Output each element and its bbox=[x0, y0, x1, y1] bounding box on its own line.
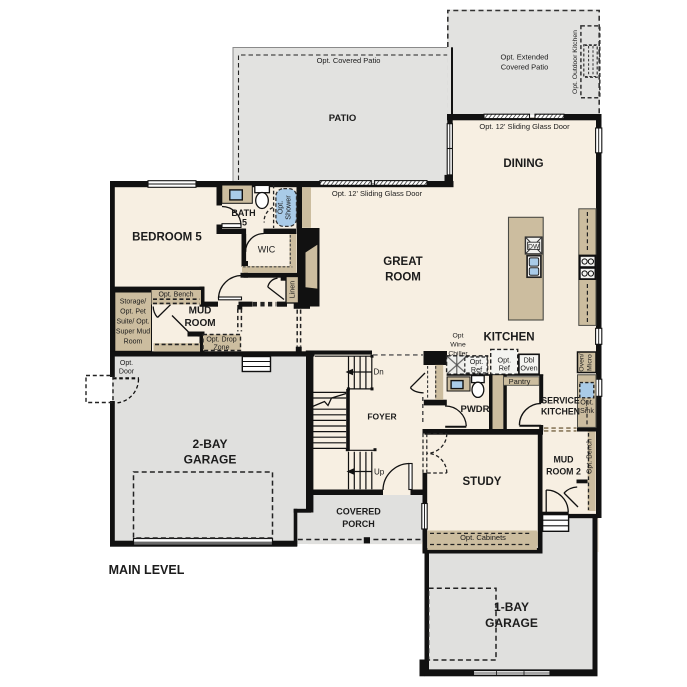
svg-text:Opt. Cabinets: Opt. Cabinets bbox=[460, 533, 506, 542]
svg-text:Suite/ Opt.: Suite/ Opt. bbox=[116, 319, 149, 326]
svg-text:Zone: Zone bbox=[214, 345, 230, 352]
svg-text:MAIN LEVEL: MAIN LEVEL bbox=[109, 563, 185, 577]
svg-text:Opt. Bench: Opt. Bench bbox=[158, 292, 193, 299]
svg-text:KITCHEN: KITCHEN bbox=[483, 332, 534, 344]
svg-text:PATIO: PATIO bbox=[329, 113, 357, 124]
svg-text:PWDR: PWDR bbox=[460, 404, 489, 415]
svg-text:GARAGE: GARAGE bbox=[485, 616, 538, 630]
svg-text:Opt. 12' Sliding Glass Door: Opt. 12' Sliding Glass Door bbox=[479, 122, 570, 131]
svg-text:Opt: Opt bbox=[453, 333, 464, 340]
svg-text:Shower: Shower bbox=[284, 195, 293, 220]
svg-text:COVERED: COVERED bbox=[336, 507, 381, 517]
svg-text:Opt. Extended: Opt. Extended bbox=[501, 53, 549, 62]
svg-text:STUDY: STUDY bbox=[463, 476, 502, 488]
svg-text:Sink: Sink bbox=[580, 406, 594, 415]
svg-text:BEDROOM 5: BEDROOM 5 bbox=[132, 232, 202, 244]
svg-text:Opt. Pet: Opt. Pet bbox=[120, 309, 146, 316]
svg-text:MUD: MUD bbox=[189, 306, 212, 317]
svg-text:Opt.: Opt. bbox=[120, 360, 133, 367]
svg-text:Oven/: Oven/ bbox=[579, 353, 586, 371]
svg-text:ROOM 2: ROOM 2 bbox=[546, 467, 581, 477]
svg-text:DW: DW bbox=[528, 243, 540, 250]
svg-text:Opt. Covered Patio: Opt. Covered Patio bbox=[317, 56, 381, 65]
svg-text:Up: Up bbox=[374, 468, 385, 477]
svg-text:MUD: MUD bbox=[553, 455, 573, 465]
svg-text:Door: Door bbox=[119, 369, 135, 376]
svg-text:Opt. Bench: Opt. Bench bbox=[587, 439, 594, 474]
svg-text:GARAGE: GARAGE bbox=[184, 453, 237, 467]
svg-text:5: 5 bbox=[242, 218, 247, 228]
svg-text:Chiller: Chiller bbox=[448, 351, 468, 358]
svg-text:WIC: WIC bbox=[258, 245, 276, 255]
svg-text:KITCHEN: KITCHEN bbox=[541, 407, 580, 417]
svg-text:1-BAY: 1-BAY bbox=[494, 600, 529, 614]
svg-text:PORCH: PORCH bbox=[342, 519, 375, 529]
svg-text:Ref: Ref bbox=[471, 365, 482, 374]
svg-text:FOYER: FOYER bbox=[367, 412, 396, 422]
svg-text:Pantry: Pantry bbox=[509, 377, 531, 386]
svg-text:ROOM: ROOM bbox=[385, 272, 421, 284]
svg-text:Linen: Linen bbox=[288, 281, 297, 299]
svg-text:BATH: BATH bbox=[231, 208, 255, 218]
svg-text:SERVICE: SERVICE bbox=[541, 396, 580, 406]
svg-text:ROOM: ROOM bbox=[184, 318, 215, 329]
svg-text:Room: Room bbox=[124, 339, 143, 346]
svg-text:Covered Patio: Covered Patio bbox=[501, 63, 549, 72]
svg-text:Opt. Drop: Opt. Drop bbox=[206, 337, 236, 344]
svg-text:DINING: DINING bbox=[503, 158, 543, 170]
svg-text:Wine: Wine bbox=[450, 342, 466, 349]
svg-text:Micro: Micro bbox=[587, 354, 594, 371]
svg-text:Dn: Dn bbox=[374, 368, 384, 377]
svg-text:Oven: Oven bbox=[520, 364, 537, 373]
svg-text:Ref: Ref bbox=[499, 364, 510, 373]
svg-text:Opt. Outdoor Kitchen: Opt. Outdoor Kitchen bbox=[572, 30, 579, 94]
svg-text:GREAT: GREAT bbox=[383, 256, 422, 268]
svg-text:Storage/: Storage/ bbox=[120, 299, 147, 306]
svg-text:Super Mud: Super Mud bbox=[116, 329, 150, 336]
svg-text:2-BAY: 2-BAY bbox=[193, 437, 228, 451]
svg-text:Opt. 12' Sliding Glass Door: Opt. 12' Sliding Glass Door bbox=[332, 189, 423, 198]
